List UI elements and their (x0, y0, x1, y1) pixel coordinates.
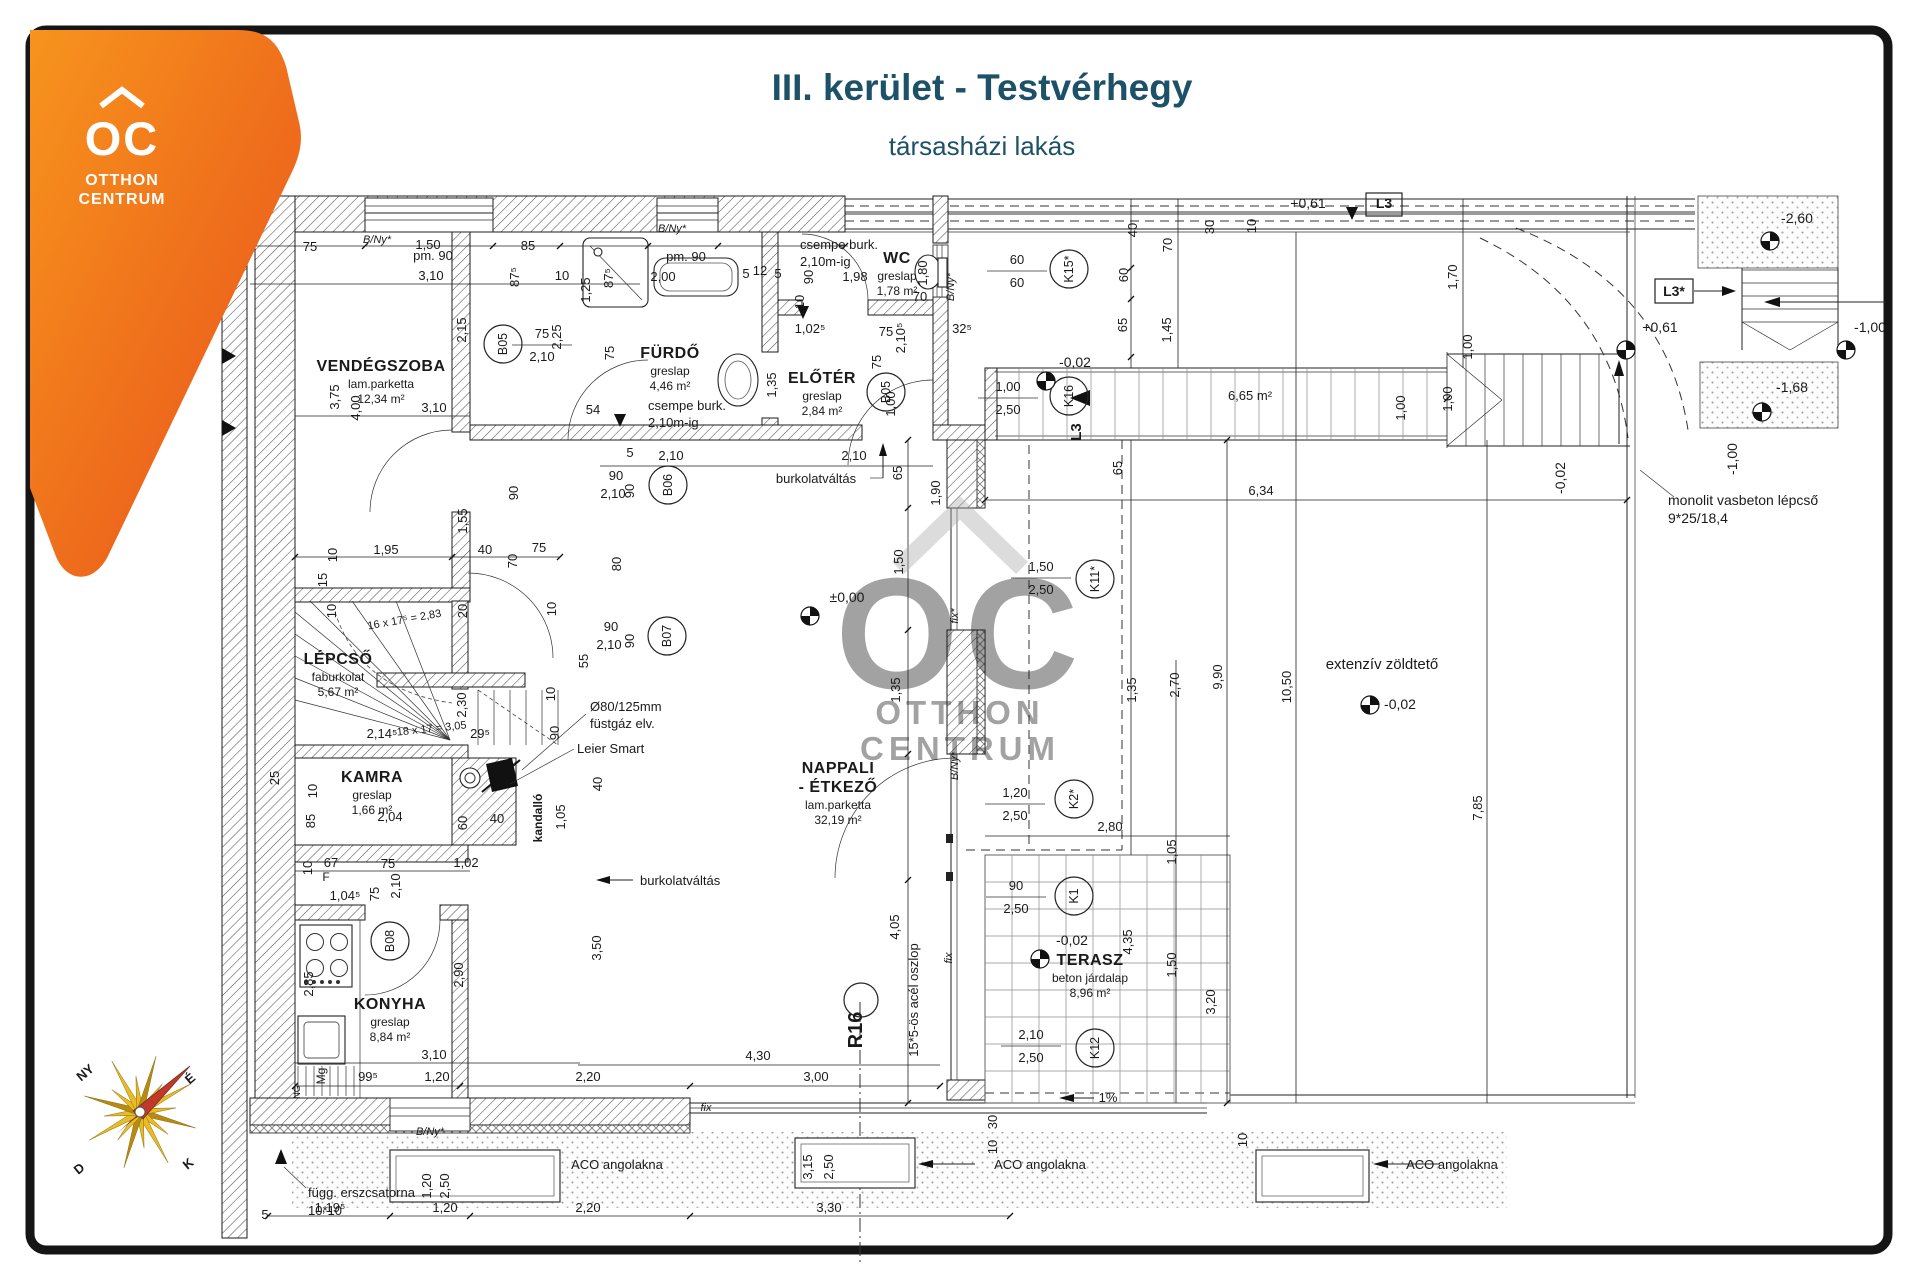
annotation-label: 15*5-ös acél oszlop (906, 943, 921, 1056)
room-name: NAPPALI (802, 760, 875, 777)
room-name: WC (883, 250, 911, 267)
dim-label: 85 (521, 238, 535, 253)
level-symbol-icon (810, 607, 819, 616)
marker-label: K16 (1062, 385, 1076, 407)
dim-label: 87⁵ (507, 267, 522, 287)
annotation-label: 18 x 17 = 3,05 (396, 719, 467, 738)
floor-plan-canvas: OC OTTHON CENTRUM OC OTTHON CENTRUM III.… (0, 0, 1920, 1281)
page-title: III. kerület - Testvérhegy (772, 67, 1193, 108)
dim-label: 65 (1115, 318, 1130, 332)
annotation-label: burkolatváltás (640, 873, 721, 888)
dim-label: 10 (985, 1140, 1000, 1154)
dim-label: 1,04⁵ (330, 888, 361, 903)
annotation-label: kandalló (531, 794, 545, 843)
compass-hub-icon (135, 1107, 145, 1117)
dim-label: 25 (267, 771, 282, 785)
window-dim: 1,20 (1002, 785, 1027, 800)
dim-label: 30 (1202, 220, 1217, 234)
dim-label: 75 (602, 346, 617, 360)
dim-label: 5 (774, 266, 781, 281)
dim-label: 2,90 (451, 962, 466, 987)
annotation-label: Ø80/125mm (590, 699, 662, 714)
page-subtitle: társasházi lakás (889, 131, 1075, 161)
level-label: -0,02 (1384, 696, 1416, 712)
annotation-label: fix* (949, 608, 961, 624)
level-label: -1,00 (1724, 443, 1740, 475)
dim-label: 1,25 (578, 277, 593, 302)
dim-label: 90 (801, 270, 816, 284)
dim-label: 1,35 (1124, 677, 1139, 702)
dim-label: 55 (576, 654, 591, 668)
dim-label: 10 (1244, 219, 1259, 233)
dim-label: 4,35 (1120, 929, 1135, 954)
level-symbol-icon (1037, 381, 1046, 390)
room-floor: beton járdalap (1052, 971, 1128, 985)
level-symbol-icon (1040, 950, 1049, 959)
annotation-label: fix (701, 1102, 713, 1114)
dim-label: 40 (490, 811, 504, 826)
room-area: 12,34 m² (357, 392, 404, 406)
dim-label: 3,10 (418, 268, 443, 283)
dim-label: 1,35 (764, 372, 779, 397)
window-dim: 2,50 (1018, 1050, 1043, 1065)
dim-label: 2,70 (1167, 672, 1182, 697)
compass-label: K (180, 1154, 197, 1172)
dim-label: 1,20 (419, 1173, 434, 1198)
dim-label: 1,20 (432, 1200, 457, 1215)
room-floor: greslap (877, 269, 917, 283)
room-name: TERASZ (1057, 952, 1124, 969)
dim-label: 5 (261, 1207, 268, 1222)
dim-label: 1,50 (891, 549, 906, 574)
dim-label: 1,98 (842, 269, 867, 284)
level-label: -1,00 (1854, 319, 1886, 335)
slope-arrow-icon (1059, 1094, 1074, 1102)
annotation-label: csempe burk. (800, 237, 878, 252)
dim-label: 87⁵ (601, 268, 616, 288)
annotation-label: fix (943, 952, 955, 964)
room-name: ELŐTÉR (788, 368, 856, 387)
dim-label: 3,30 (816, 1200, 841, 1215)
annotation-label: F (322, 870, 329, 884)
room-name: VENDÉGSZOBA (316, 356, 445, 375)
window-dim: 60 (1010, 275, 1024, 290)
compass-rose: NYÉDK (71, 1056, 199, 1177)
dim-label: 2,10 (600, 486, 625, 501)
window-dim: 1,50 (1028, 559, 1053, 574)
level-label: +0,61 (1642, 319, 1678, 335)
dim-label: 90 (547, 726, 562, 740)
burkolat-arrow2-icon (596, 876, 610, 884)
dim-label: 10 (325, 548, 340, 562)
level-label: +0,61 (1290, 195, 1326, 211)
dim-label: 75 (532, 540, 546, 555)
level-symbol-icon (1046, 372, 1055, 381)
dim-label: 75 (869, 355, 884, 369)
room-floor: greslap (802, 389, 842, 403)
room-floor: lam.parketta (348, 377, 414, 391)
dim-label: 1,00 (1460, 334, 1475, 359)
annotation-label: 2,10m-ig (648, 415, 699, 430)
annotation-label: burkolatváltás (776, 471, 857, 486)
annotation-label: 1% (1099, 1090, 1118, 1105)
level-symbol-icon (1837, 350, 1846, 359)
room-area: 4,46 m² (650, 379, 691, 393)
dim-label: 20 (455, 604, 470, 618)
annotation-label: 9*25/18,4 (1668, 510, 1728, 526)
annotation-label: ACO angolakna (1406, 1157, 1499, 1172)
outdoor-stair (1447, 354, 1630, 446)
annotation-label: 16 x 17⁵ = 2,83 (367, 608, 443, 633)
dim-label: 3,10 (421, 1047, 446, 1062)
room-area: 32,19 m² (814, 813, 861, 827)
marker-label: B05 (879, 381, 893, 403)
dim-label: 60 (455, 816, 470, 830)
gutter-arrow-icon (275, 1149, 287, 1164)
marker-label: B07 (660, 625, 674, 647)
level-label: -0,02 (1056, 932, 1088, 948)
annotation-label: pm. 90 (666, 249, 706, 264)
dim-label: 65 (1110, 461, 1125, 475)
dim-label: 75 (303, 239, 317, 254)
dim-label: 3,20 (1203, 989, 1218, 1014)
dim-label: 99⁵ (358, 1069, 378, 1084)
dim-label: 60 (1116, 268, 1131, 282)
annotation-label: Mg (314, 1068, 328, 1085)
logo-brand: OC (85, 112, 160, 165)
level-symbol-icon (1031, 959, 1040, 968)
window-dim: 1,00 (995, 379, 1020, 394)
l3star-arrow-icon (1722, 286, 1736, 296)
logo-line2: CENTRUM (79, 191, 166, 208)
room-name: - ÉTKEZŐ (799, 777, 878, 796)
dim-label: 3,15 (800, 1154, 815, 1179)
level-symbol-icon (1370, 696, 1379, 705)
room-area: 8,84 m² (370, 1030, 411, 1044)
annotation-label: ACO angolakna (571, 1157, 664, 1172)
indoor-stair (1742, 268, 1886, 350)
dim-label: 2,20 (575, 1200, 600, 1215)
room-name: LÉPCSŐ (304, 649, 373, 668)
annotation-label: B/Ny* (949, 751, 961, 780)
header: III. kerület - Testvérhegy társasházi la… (772, 67, 1193, 161)
dim-label: 75 (367, 887, 382, 901)
logo-line1: OTTHON (85, 172, 159, 189)
room-floor: greslap (370, 1015, 410, 1029)
dim-label: 1,45 (1159, 317, 1174, 342)
watermark: OC OTTHON CENTRUM (836, 508, 1085, 767)
dim-label: 30 (985, 1115, 1000, 1129)
dim-label: 5 (626, 445, 633, 460)
dim-label: 12 (753, 263, 767, 278)
dim-label: 4,30 (745, 1048, 770, 1063)
marker-label: B08 (383, 930, 397, 952)
dim-label: 10 (305, 784, 320, 798)
level-label: ±0,00 (830, 589, 865, 605)
dim-label: 10 (544, 602, 559, 616)
dim-label: 1,80 (915, 260, 930, 285)
dim-label: 1,02 (453, 855, 478, 870)
dim-label: 2,80 (1097, 819, 1122, 834)
room-area: 1,78 m² (877, 284, 918, 298)
dim-label: 2,15 (454, 317, 469, 342)
annotation-label: monolit vasbeton lépcső (1668, 492, 1818, 508)
dim-label: 10,50 (1279, 671, 1294, 704)
dim-label: 3,50 (589, 935, 604, 960)
dim-label: 75 (381, 856, 395, 871)
level-symbol-icon (1626, 341, 1635, 350)
dim-label: 4,05 (887, 914, 902, 939)
room-area: 2,84 m² (802, 404, 843, 418)
marker-label: B06 (661, 474, 675, 496)
window-dim: 2,10 (529, 349, 554, 364)
compass-label: NY (73, 1061, 97, 1084)
annotation-label: R16 (845, 1012, 867, 1049)
dim-label: 1,55 (455, 508, 470, 533)
dim-label: 1,35 (888, 677, 903, 702)
dim-label: 90 (604, 619, 618, 634)
room-floor: faburkolat (312, 670, 365, 684)
dim-label: 1,05 (553, 804, 568, 829)
annotation-label: B/Ny* (416, 1126, 445, 1138)
window-dim: 2,10 (1018, 1027, 1043, 1042)
dim-label: 70 (1160, 238, 1175, 252)
dim-label: 2,25 (549, 324, 564, 349)
dim-label: 2,30 (454, 692, 469, 717)
marker-label: K1 (1067, 888, 1081, 903)
dim-label: 1,00 (1440, 386, 1455, 411)
window-dim: 60 (1010, 252, 1024, 267)
compass-label: É (182, 1070, 199, 1087)
dim-label: 2,20 (575, 1069, 600, 1084)
dim-label: 40 (590, 777, 605, 791)
dim-label: 2,10 (388, 873, 403, 898)
dim-label: 2,10 (596, 637, 621, 652)
burkolat-arrow-icon (879, 443, 887, 456)
dim-label: 40 (1125, 223, 1140, 237)
annotation-label: B/Ny* (363, 234, 392, 246)
dim-label: 2,10⁵ (893, 323, 908, 354)
dim-label: 2,10 (658, 448, 683, 463)
dim-label: 3,75 (327, 384, 342, 409)
annotation-label: L3 (1068, 423, 1085, 441)
annotation-label: L3* (1663, 283, 1685, 299)
dim-label: 1,02⁵ (795, 321, 826, 336)
annotation-label: extenzív zöldtető (1326, 656, 1439, 673)
dim-label: 3,10 (421, 400, 446, 415)
level-symbol-icon (1361, 705, 1370, 714)
marker-label: K12 (1088, 1037, 1102, 1059)
marker-label: K15* (1062, 255, 1076, 282)
window-dim: 2,50 (1003, 901, 1028, 916)
window-dim: 2,50 (995, 402, 1020, 417)
annotation-label: pm. 90 (413, 248, 453, 263)
dim-label: 10 (324, 604, 339, 618)
level-label: -0,02 (1059, 354, 1091, 370)
room-area: 1,66 m² (352, 803, 393, 817)
dim-label: 1,20 (424, 1069, 449, 1084)
dim-label: 2,50 (437, 1173, 452, 1198)
room-floor: greslap (650, 364, 690, 378)
room-name: FÜRDŐ (640, 343, 699, 362)
dim-label: 10 (543, 687, 558, 701)
dim-label: 2,14⁵ (367, 726, 398, 741)
annotation-label: B/Ny* (658, 223, 687, 235)
room-floor: lam.parketta (805, 798, 871, 812)
dim-label: 5 (742, 266, 749, 281)
dim-label: 32⁵ (952, 321, 972, 336)
annotation-label: ACO angolakna (994, 1157, 1087, 1172)
window-dim: 2,50 (1002, 808, 1027, 823)
annotation-label: csempe burk. (648, 398, 726, 413)
annotation-label: Leier Smart (577, 741, 645, 756)
room-name: KONYHA (354, 996, 426, 1013)
dim-label: 2,85 (301, 971, 316, 996)
annotation-label: 2,10m-ig (800, 254, 851, 269)
level-symbol-icon (1846, 341, 1855, 350)
annotation-label: B/Ny* (945, 272, 957, 301)
dim-label: 10 (300, 861, 315, 875)
dim-label: 54 (586, 402, 600, 417)
dim-label: 10 (555, 268, 569, 283)
dim-label: 40 (478, 542, 492, 557)
window-dim: 2,50 (1028, 582, 1053, 597)
dim-label: 85 (303, 814, 318, 828)
dim-label: 2,50 (821, 1154, 836, 1179)
level-symbol-icon (1617, 350, 1626, 359)
dim-label: 10 (1235, 1133, 1250, 1147)
level-label: -1,68 (1776, 379, 1808, 395)
dim-label: 80 (609, 557, 624, 571)
dim-label: 1,00 (1393, 395, 1408, 420)
dim-label: 3,00 (803, 1069, 828, 1084)
level-symbol-icon (801, 616, 810, 625)
dim-label: 90 (609, 468, 623, 483)
dim-label: 7,85 (1470, 795, 1485, 820)
dim-label: 6,65 m² (1228, 388, 1273, 403)
annotation-label: 10*10 (308, 1203, 342, 1218)
dim-label: 90 (506, 486, 521, 500)
dim-label: 90 (622, 634, 637, 648)
dim-label: 29⁵ (470, 726, 490, 741)
marker-label: K2* (1067, 789, 1081, 809)
dim-label: 1,95 (373, 542, 398, 557)
dim-label: 9,90 (1210, 664, 1225, 689)
dim-label: 67 (324, 855, 338, 870)
room-name: KAMRA (341, 769, 403, 786)
dim-label: 1,90 (928, 480, 943, 505)
dim-label: 75 (879, 324, 893, 339)
dim-label: 2,00 (650, 269, 675, 284)
dim-label: 1,70 (1445, 264, 1460, 289)
dim-label: 65 (890, 466, 905, 480)
dim-label: 2,10 (841, 448, 866, 463)
dim-label: 1,05 (1164, 839, 1179, 864)
compass-label: D (71, 1160, 88, 1178)
dim-label: 70 (505, 554, 520, 568)
annotation-label: NG (292, 1085, 302, 1099)
room-area: 5,67 m² (318, 685, 359, 699)
window-dim: 90 (1009, 878, 1023, 893)
dim-label: 15 (315, 573, 330, 587)
level-label: -0,02 (1552, 462, 1568, 494)
annotation-label: L3 (1376, 195, 1393, 211)
dim-label: 6,34 (1248, 483, 1273, 498)
room-area: 8,96 m² (1070, 986, 1111, 1000)
level-label: -2,60 (1781, 210, 1813, 226)
annotation-label: függ. erszcsatorna (308, 1185, 416, 1200)
flue-icon (460, 768, 480, 788)
room-floor: greslap (352, 788, 392, 802)
marker-label: K11* (1088, 566, 1102, 592)
annotation-label: füstgáz elv. (590, 716, 655, 731)
marker-label: B05 (496, 333, 510, 355)
dim-label: 1,50 (1164, 952, 1179, 977)
window-dim: 75 (535, 326, 549, 341)
dim-label: 10 (792, 295, 807, 309)
